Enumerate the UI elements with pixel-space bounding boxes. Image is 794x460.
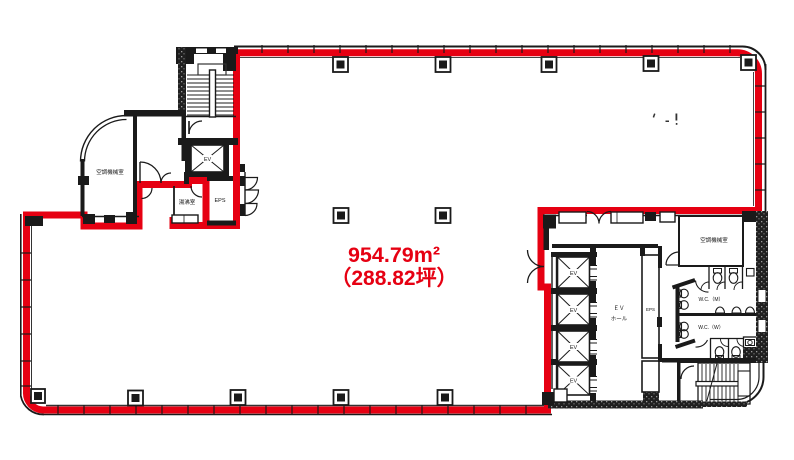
svg-text:空調機械室: 空調機械室 bbox=[700, 236, 728, 244]
svg-text:954.79m²: 954.79m² bbox=[348, 243, 440, 267]
svg-text:EV: EV bbox=[570, 345, 578, 351]
svg-text:EV: EV bbox=[204, 157, 212, 163]
svg-text:EV: EV bbox=[570, 379, 578, 385]
svg-text:W.C.（W）: W.C.（W） bbox=[698, 325, 724, 331]
svg-text:空調機械室: 空調機械室 bbox=[96, 168, 124, 176]
svg-text:ＥＶ: ＥＶ bbox=[613, 305, 624, 312]
svg-text:EV: EV bbox=[570, 308, 578, 314]
svg-text:ホール: ホール bbox=[611, 316, 628, 323]
svg-text:（288.82坪）: （288.82坪） bbox=[330, 266, 457, 290]
svg-text:W.C.（M）: W.C.（M） bbox=[699, 297, 724, 303]
svg-text:EPS: EPS bbox=[214, 198, 225, 204]
svg-text:EV: EV bbox=[570, 271, 578, 277]
svg-text:EPS: EPS bbox=[646, 307, 655, 312]
svg-text:湯沸室: 湯沸室 bbox=[179, 198, 196, 206]
